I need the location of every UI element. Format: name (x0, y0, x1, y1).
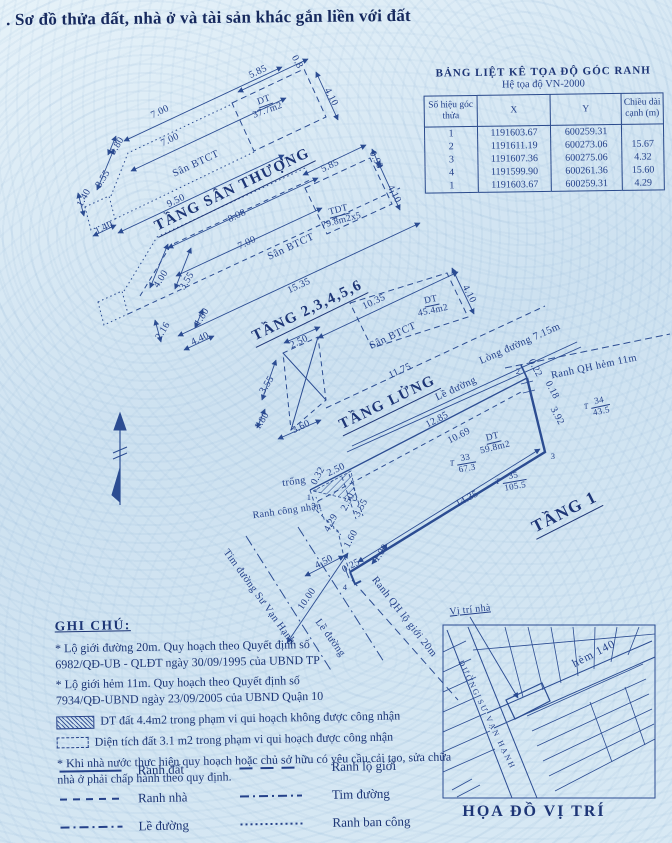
legend-label: Ranh nhà (138, 789, 240, 807)
area-label: DT45.4m2 (415, 292, 449, 320)
dim-label: 8.08 (226, 207, 248, 225)
surface-label: Sân BTCT (368, 320, 418, 351)
parcel-area: 105.5 (503, 479, 528, 494)
parcel-t: T (583, 401, 590, 411)
dim-label: 1.40 (75, 187, 93, 209)
corner-number: 3 (551, 451, 556, 461)
parcel-label: T35105.5 (494, 469, 528, 495)
plan-title-ground: TẦNG 1 (527, 486, 604, 540)
dim-label: 4.50 (313, 553, 335, 571)
street-label: Lòng đường 7.15m (478, 321, 562, 367)
legend: Ranh đất Ranh lộ giới Ranh nhà Tim đường… (59, 756, 482, 835)
coordinate-table-subtitle: Hệ tọa độ VN-2000 (423, 77, 663, 91)
parcel-area: 43.5 (591, 404, 612, 419)
dim-label: 3.92 (548, 405, 566, 427)
cell-x: 1191607.36 (478, 152, 551, 166)
dim-label: 1.60 (342, 528, 360, 550)
dim-label: 4.40 (189, 330, 211, 348)
plan-title-mezz: TẦNG LỬNG (335, 372, 441, 437)
table-row: 1 1191603.67 600259.31 4.29 (425, 176, 664, 193)
dim-label: 3.60 (290, 418, 312, 436)
dotted-line-icon (240, 822, 302, 825)
cell-len: 15.67 (622, 137, 664, 151)
cell-x: 1191603.67 (477, 125, 550, 140)
dim-label: 12.85 (424, 410, 450, 431)
cell-y: 600273.06 (551, 138, 622, 152)
legend-label: Tim đường (332, 784, 482, 803)
area-value: 59.8m2 (479, 440, 511, 458)
dim-label: 10.00 (296, 586, 319, 612)
corner-number: 2 (516, 366, 521, 376)
dash-line-icon (60, 798, 122, 801)
area-label: DT37.7m2 (248, 90, 284, 121)
longdash-line-icon (239, 766, 301, 769)
boundary-label: Ranh công nhận (252, 501, 322, 522)
cell-y: 600261.36 (551, 164, 622, 178)
cell-y: 600259.31 (550, 124, 621, 138)
dim-label: 0.90 (367, 149, 385, 171)
dim-label: 7.00 (236, 234, 258, 252)
area-value: 45.4m2 (417, 303, 449, 320)
dim-label: 4.00 (151, 268, 170, 290)
dim-label: 5.85 (247, 63, 269, 81)
col-corner-id: Số hiệu góc thửa (424, 95, 477, 127)
parcel-label: T3367.3 (449, 452, 478, 477)
parcel-t: T (449, 458, 455, 468)
cell-id: 2 (425, 140, 478, 154)
parcel-area: 67.3 (457, 461, 478, 475)
coordinate-table-box: BẢNG LIỆT KÊ TỌA ĐỘ GÓC RANH Hệ tọa độ V… (423, 64, 665, 193)
dim-label: 7.00 (159, 131, 181, 149)
surface-label: Sân BTCT (171, 148, 221, 179)
dim-label: 2.16 (153, 320, 172, 342)
note-line: Diện tích đất 3.1 m2 trong phạm vi qui h… (95, 730, 394, 751)
dim-label: 3.55 (93, 168, 112, 190)
dim-label: 15.35 (286, 276, 312, 296)
surface-label: Sân BTCT (266, 231, 316, 262)
dim-label: 3.55 (257, 374, 276, 396)
cell-id: 1 (424, 126, 477, 140)
note-line: DT đất 4.4m2 trong phạm vi qui hoạch khô… (100, 709, 400, 730)
dim-label: 4.10 (460, 283, 478, 305)
map-title: HỌA ĐỒ VỊ TRÍ (462, 803, 605, 821)
dim-label: 11.75 (387, 361, 413, 381)
empty-label: trống (282, 475, 307, 489)
survey-sheet: . Sơ đồ thửa đất, nhà ở và tài sản khác … (0, 0, 672, 843)
dashed-swatch-icon (57, 737, 89, 749)
cell-y: 600259.31 (551, 177, 622, 191)
cell-x: 1191603.67 (478, 178, 551, 193)
cell-x: 1191611.19 (478, 139, 551, 153)
cell-len: 15.60 (622, 163, 664, 177)
note-line: 6982/QĐ-UB - QLĐT ngày 30/09/1995 của UB… (55, 652, 320, 671)
dim-label: 10.69 (446, 426, 472, 447)
boundary-label: Ranh QH hẻm 11m (550, 353, 638, 382)
cell-x: 1191599.90 (478, 165, 551, 179)
map-street-label: ĐƯỜNG SƯ VẠN HẠNH (457, 659, 518, 771)
dim-label: 0.80 (107, 135, 126, 157)
dashdot-line-icon (61, 826, 123, 829)
legend-label: Ranh lộ giới (331, 756, 481, 775)
parcel-label: T3443.5 (582, 394, 611, 420)
dim-label: 5.85 (319, 157, 341, 175)
corner-number: 1 (307, 492, 312, 502)
hatch-swatch-icon (56, 715, 94, 729)
coordinate-table: Số hiệu góc thửa X Y Chiều dài cạnh (m) … (424, 92, 665, 193)
dim-label: 2.50 (325, 461, 347, 479)
legend-label: Lề đường (138, 817, 240, 835)
street-label: Lề đường (434, 375, 478, 404)
dim-label: 4.10 (322, 86, 340, 108)
coordinate-table-header: Số hiệu góc thửa X Y Chiều dài cạnh (m) (424, 93, 663, 127)
map-location-label: Vị trí nhà (449, 602, 491, 617)
dim-label: 0.18 (543, 379, 561, 401)
corner-number: 4 (343, 582, 348, 592)
dim-label: 0.22 (526, 357, 544, 379)
cell-id: 4 (425, 166, 478, 180)
cell-len (621, 124, 663, 138)
dim-label: 1.40 (93, 219, 115, 237)
cell-len: 4.32 (622, 150, 664, 164)
dim-label: 10.35 (361, 292, 387, 312)
col-length: Chiều dài cạnh (m) (621, 93, 663, 125)
cell-id: 1 (425, 179, 478, 193)
dim-label: 1.80 (192, 306, 211, 328)
solid-line-icon (60, 770, 122, 773)
area-label: DT59.8m2 (477, 429, 512, 458)
cell-id: 3 (425, 153, 478, 167)
dim-label: 14.35 (454, 489, 480, 510)
cell-len: 4.29 (622, 176, 664, 190)
dim-label: 2.50 (288, 333, 310, 351)
cell-y: 600275.06 (551, 151, 622, 165)
map-alley-label: hẻm 140 (570, 638, 617, 670)
dim-label: 3.55 (177, 270, 196, 292)
note-line: 7934/QĐ-UBND ngày 23/09/2005 của UBND Qu… (56, 689, 324, 708)
legend-label: Ranh đất (137, 761, 239, 779)
legend-label: Ranh ban công (332, 812, 482, 831)
dim-label: 0.25 (340, 557, 362, 575)
parcel-t: T (495, 477, 501, 487)
area-label: TDT79.8m2x5 (318, 200, 363, 232)
dim-label: 1.80 (252, 410, 271, 432)
dashdot-line-icon (240, 794, 302, 797)
dim-label: 4.29 (322, 512, 340, 534)
dim-label: 7.00 (149, 103, 171, 121)
dim-label: 1.00 (371, 542, 391, 564)
dim-label: 0.8 (289, 53, 305, 70)
dim-label: 4.10 (385, 183, 403, 205)
col-x: X (477, 94, 550, 126)
col-y: Y (550, 93, 621, 125)
